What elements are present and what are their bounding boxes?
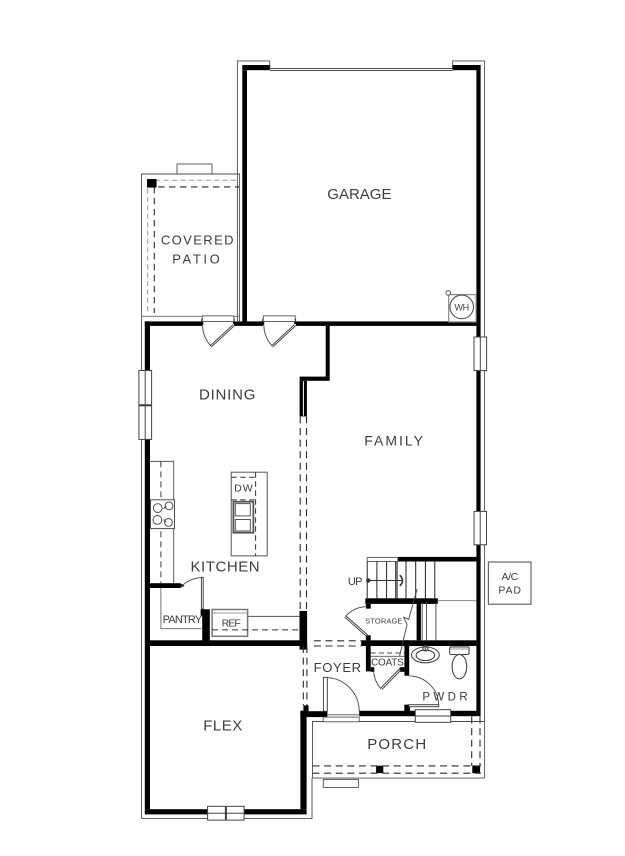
svg-text:PANTRY: PANTRY: [163, 614, 203, 626]
svg-text:FAMILY: FAMILY: [364, 432, 425, 448]
svg-text:STORAGE: STORAGE: [365, 617, 402, 626]
svg-text:FLEX: FLEX: [203, 717, 243, 734]
svg-text:DW: DW: [234, 483, 254, 495]
svg-text:WH: WH: [454, 302, 468, 312]
svg-text:KITCHEN: KITCHEN: [190, 558, 260, 575]
svg-text:PWDR: PWDR: [422, 692, 471, 704]
svg-text:FOYER: FOYER: [314, 660, 362, 675]
svg-text:A/C: A/C: [502, 571, 519, 583]
svg-text:PATIO: PATIO: [172, 251, 222, 266]
svg-text:COVERED: COVERED: [161, 233, 235, 248]
svg-text:GARAGE: GARAGE: [327, 186, 391, 203]
svg-text:DINING: DINING: [199, 386, 256, 403]
svg-text:UP: UP: [348, 576, 362, 588]
svg-text:PAD: PAD: [498, 585, 522, 597]
svg-text:PORCH: PORCH: [367, 736, 427, 753]
svg-text:REF: REF: [222, 618, 241, 630]
svg-text:COATS: COATS: [371, 658, 404, 669]
